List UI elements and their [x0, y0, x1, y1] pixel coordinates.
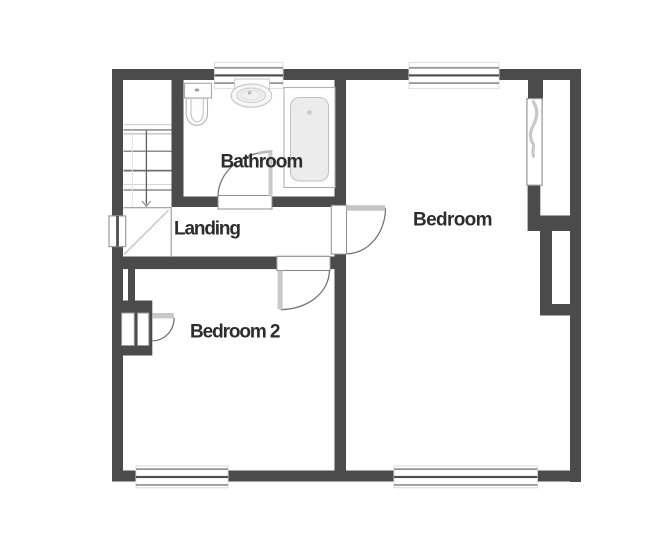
- svg-text:Landing: Landing: [174, 219, 240, 240]
- svg-text:Bedroom 2: Bedroom 2: [190, 322, 280, 343]
- svg-text:Bathroom: Bathroom: [221, 152, 303, 173]
- svg-text:Bedroom: Bedroom: [413, 209, 492, 230]
